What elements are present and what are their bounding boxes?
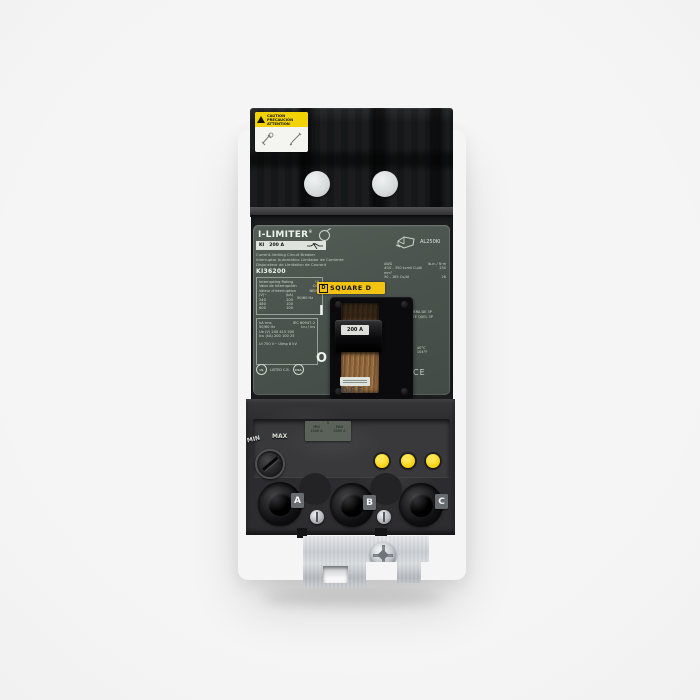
product-photo-stage: CAUTION PRECAUCIÓN ATTENTION I-LIMITER® … — [0, 0, 700, 700]
ce-mark: CE — [413, 368, 426, 377]
certification-row: UL LISTED C.B. CSA — [256, 364, 304, 375]
square-d-wordmark: SQUARE D — [330, 284, 372, 292]
frequency: 50/60 Hz — [297, 296, 313, 300]
brand-mark-icon — [319, 230, 330, 241]
warning-triangle-icon — [257, 116, 265, 123]
torque-pictogram-icon — [260, 131, 276, 147]
base-screw — [377, 510, 391, 524]
lug-icon — [394, 233, 418, 251]
product-description: Current-limiting Circuit Breaker Interru… — [256, 253, 344, 267]
registered-mark: ® — [308, 229, 312, 234]
iec-rating-box: kA rmsIEC 60947-2 50/60 HzIcu / Ics Ue (… — [256, 318, 318, 365]
caution-header: CAUTION PRECAUCIÓN ATTENTION — [255, 112, 308, 127]
breaker-symbol-icon — [307, 243, 323, 249]
off-position-mark: O — [316, 351, 327, 366]
phase-label-a: A — [291, 493, 304, 508]
handle-rating-plate: 200 A — [341, 325, 369, 335]
caution-label: CAUTION PRECAUCIÓN ATTENTION — [255, 112, 308, 152]
catalog-number: KI36200 — [256, 268, 286, 275]
escutcheon-screw — [401, 301, 408, 308]
cover-rivet-right — [372, 171, 398, 197]
caution-text: CAUTION PRECAUCIÓN ATTENTION — [267, 114, 293, 126]
small-label — [340, 377, 370, 386]
mounting-bracket — [303, 536, 429, 589]
molded-off-text: OFF — [341, 386, 365, 395]
lug-kit-number: AL250KI — [420, 239, 441, 245]
screwdriver-pictogram-icon — [287, 131, 303, 147]
interrupting-rating-box: Interrupting RatingUL Valor de Interrupc… — [256, 277, 323, 315]
phase-label-c: C — [435, 494, 448, 509]
model-strip: KI 200 A — [256, 241, 326, 250]
dial-slot — [262, 456, 278, 470]
escutcheon-screw — [401, 388, 408, 395]
ampere-rating: 200 A — [269, 243, 284, 248]
on-position-mark: I — [319, 304, 324, 319]
bracket-slot — [323, 566, 348, 583]
square-d-monogram: D — [319, 284, 328, 293]
brand-name: I-LIMITER® — [258, 229, 313, 240]
indicator-dot-3 — [426, 454, 440, 468]
listed-text: LISTED C.B. — [270, 368, 290, 372]
square-d-logo: D SQUARE D — [317, 282, 385, 294]
frame-code: KI — [259, 243, 264, 248]
wire-specs: AWGlb-in / N·m #10 - 350 kcmil Cu/Al250 … — [384, 262, 446, 280]
caution-pictograms — [255, 127, 308, 151]
trip-setting-label: 5 MIN1000 A MAX2000 A — [305, 421, 351, 441]
cover-rivet-left — [304, 171, 330, 197]
ul-listed-icon: UL — [256, 364, 267, 375]
indicator-dot-1 — [375, 454, 389, 468]
dial-max-text: MAX — [272, 433, 287, 440]
trip-adjustment-dial[interactable] — [255, 449, 285, 479]
indicator-dot-2 — [401, 454, 415, 468]
base-screw — [310, 510, 324, 524]
phase-label-b: B — [363, 495, 376, 510]
floor-shadow — [262, 590, 444, 606]
csa-mark-icon: CSA — [293, 364, 304, 375]
